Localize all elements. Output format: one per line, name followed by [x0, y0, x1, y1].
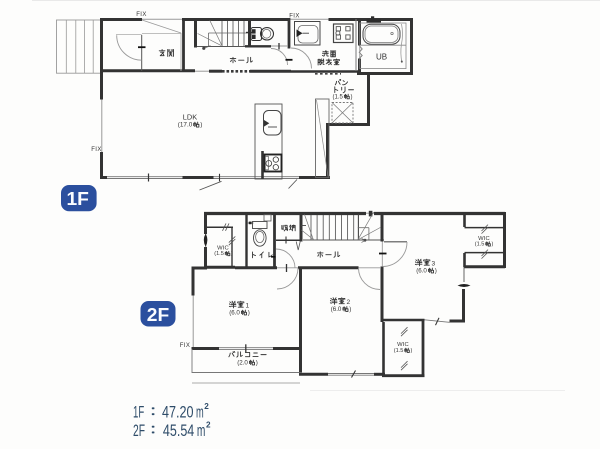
svg-text:(2.0: (2.0 [237, 359, 248, 366]
svg-text:): ) [256, 359, 258, 366]
svg-text:2F: 2F [133, 422, 145, 440]
svg-text:): ) [351, 94, 353, 100]
svg-text:(1.5: (1.5 [214, 251, 224, 257]
svg-text:(17.0: (17.0 [178, 121, 193, 128]
svg-text:): ) [435, 267, 437, 274]
svg-text:LDK: LDK [183, 113, 197, 122]
svg-text:1F: 1F [67, 188, 89, 209]
svg-text:(1.5: (1.5 [333, 94, 344, 100]
svg-text:(6.0: (6.0 [229, 309, 240, 316]
svg-text:FIX: FIX [91, 147, 102, 153]
svg-text:): ) [200, 121, 202, 128]
svg-text:1F: 1F [133, 404, 144, 422]
svg-text:): ) [248, 309, 250, 316]
svg-text:FIX: FIX [136, 12, 147, 18]
svg-text:2F: 2F [147, 304, 169, 325]
svg-text:): ) [411, 348, 413, 354]
svg-text:m: m [196, 404, 204, 422]
svg-text:UB: UB [376, 52, 387, 61]
svg-text:2: 2 [204, 402, 209, 411]
svg-text:): ) [349, 306, 351, 313]
svg-text:): ) [231, 251, 233, 257]
svg-text:): ) [492, 242, 494, 248]
svg-text:(6.0: (6.0 [416, 267, 427, 274]
svg-text:2: 2 [206, 420, 211, 429]
svg-text:47.20: 47.20 [162, 404, 194, 422]
svg-text:45.54: 45.54 [163, 422, 194, 440]
svg-text:FIX: FIX [180, 343, 191, 349]
svg-text:(6.0: (6.0 [331, 306, 342, 313]
svg-text:(1.5: (1.5 [394, 348, 404, 354]
svg-text:m: m [197, 422, 206, 440]
svg-text:(1.5: (1.5 [475, 242, 485, 248]
svg-text:FIX: FIX [289, 14, 300, 20]
